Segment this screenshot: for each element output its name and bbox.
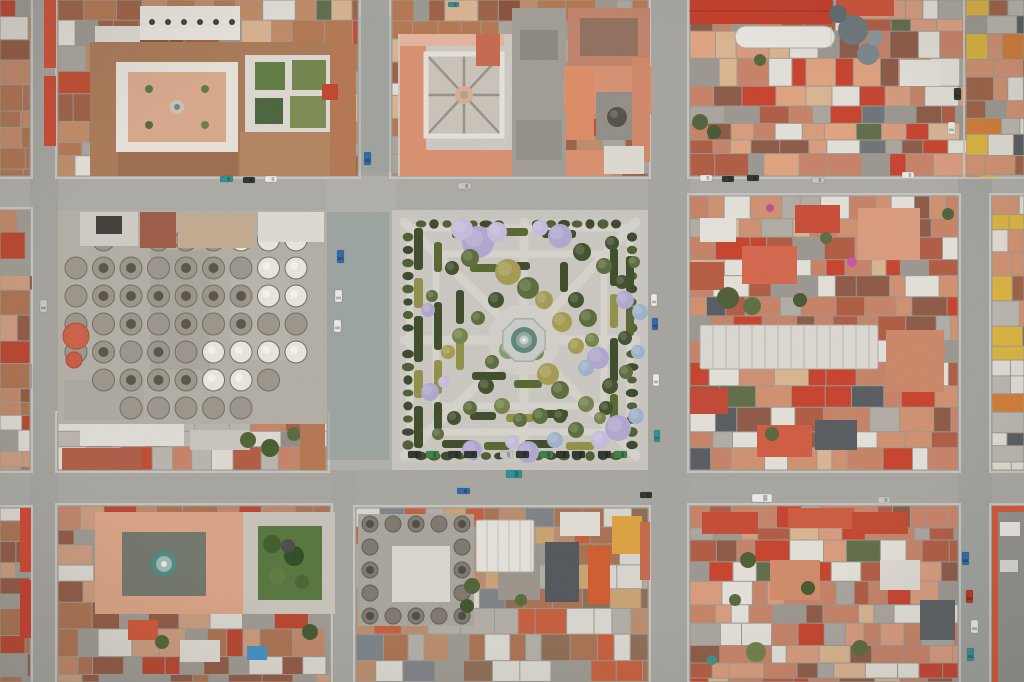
photo-vignette-overlay [0, 0, 1024, 682]
aerial-photo-city-grid [0, 0, 1024, 682]
aerial-photo [0, 0, 1024, 682]
